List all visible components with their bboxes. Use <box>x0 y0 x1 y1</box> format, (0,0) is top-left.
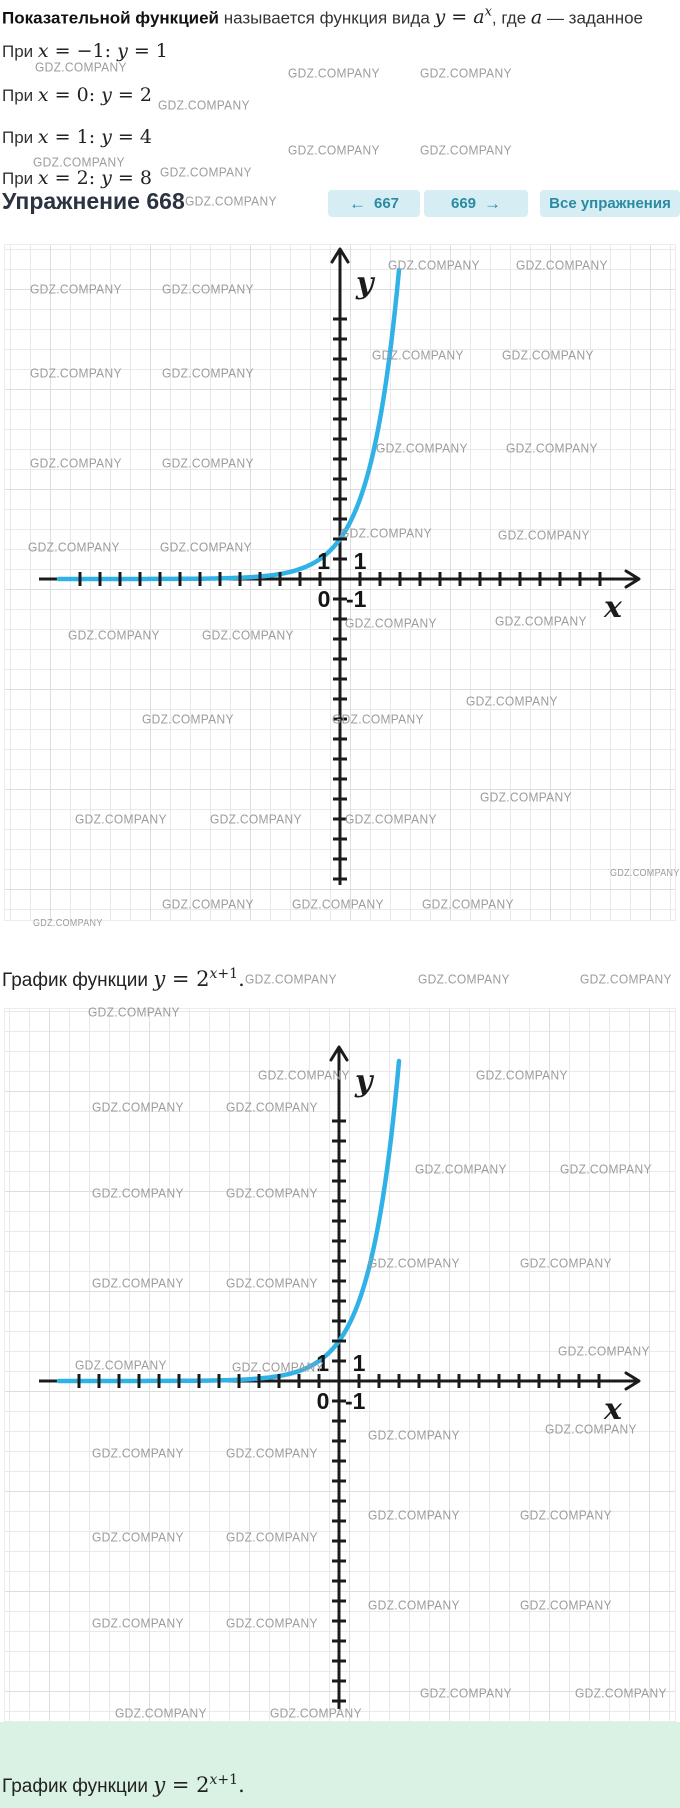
watermark: GDZ.COMPANY <box>420 65 512 80</box>
axis-number-zero: 0 <box>317 1388 330 1414</box>
exponential-curve <box>59 1061 399 1381</box>
watermark: GDZ.COMPANY <box>245 971 337 986</box>
axis-number-one-right: 1 <box>354 548 367 574</box>
axis-number-minus-one: -1 <box>346 586 367 612</box>
nav-next-button[interactable]: 669 → <box>424 190 528 217</box>
watermark: GDZ.COMPANY <box>158 97 250 112</box>
axis-number-minus-one: -1 <box>345 1388 366 1414</box>
function-plot-svg: yx110-1 <box>5 1009 677 1723</box>
right-arrow-icon: → <box>484 194 501 214</box>
exponential-curve <box>59 270 399 579</box>
function-graph-1: yx110-1 <box>4 244 676 921</box>
intro-text-2: , где <box>492 8 531 27</box>
axis-number-one-right: 1 <box>353 1350 366 1376</box>
nav-next-label: 669 <box>451 195 476 212</box>
function-plot-svg: yx110-1 <box>5 245 677 922</box>
intro-term: Показательной функцией <box>2 8 219 27</box>
y-axis-label: y <box>355 266 376 301</box>
graph-caption: График функции y = 2x+1. <box>2 966 245 992</box>
watermark: GDZ.COMPANY <box>580 971 672 986</box>
axis-number-one-left: 1 <box>317 548 330 574</box>
intro-paragraph: Показательной функцией называется функци… <box>2 5 643 28</box>
x-axis-label: x <box>603 590 623 625</box>
case-line-1: При x = −1: y = 1 <box>2 40 168 62</box>
left-arrow-icon: ← <box>349 194 366 214</box>
watermark: GDZ.COMPANY <box>420 142 512 157</box>
case-line-2: При x = 0: y = 2 <box>2 84 152 106</box>
intro-text-3: — заданное <box>542 8 643 27</box>
nav-prev-label: 667 <box>374 195 399 212</box>
page: Показательной функцией называется функци… <box>0 0 680 1808</box>
y-axis-label: y <box>354 1064 375 1099</box>
intro-var-a: a <box>531 6 542 28</box>
intro-text-1: называется функция вида <box>219 8 435 27</box>
nav-prev-button[interactable]: ← 667 <box>328 190 420 217</box>
axis-number-zero: 0 <box>318 586 331 612</box>
case-line-3: При x = 1: y = 4 <box>2 126 152 148</box>
case-line-4: При x = 2: y = 8 <box>2 167 152 189</box>
axis-number-one-left: 1 <box>316 1350 329 1376</box>
watermark: GDZ.COMPANY <box>160 164 252 179</box>
function-graph-2: yx110-1 <box>4 1008 676 1722</box>
watermark: GDZ.COMPANY <box>288 142 380 157</box>
exercise-heading: Упражнение 668 <box>2 188 185 215</box>
answer-caption: График функции y = 2x+1. <box>2 1772 245 1798</box>
answer-footer: График функции y = 2x+1. <box>0 1722 680 1808</box>
watermark: GDZ.COMPANY <box>418 971 510 986</box>
watermark: GDZ.COMPANY <box>288 65 380 80</box>
watermark: GDZ.COMPANY <box>185 193 277 208</box>
x-axis-label: x <box>603 1392 623 1427</box>
intro-formula: y = ax <box>435 6 492 28</box>
nav-all-exercises-button[interactable]: Все упражнения <box>540 190 680 217</box>
